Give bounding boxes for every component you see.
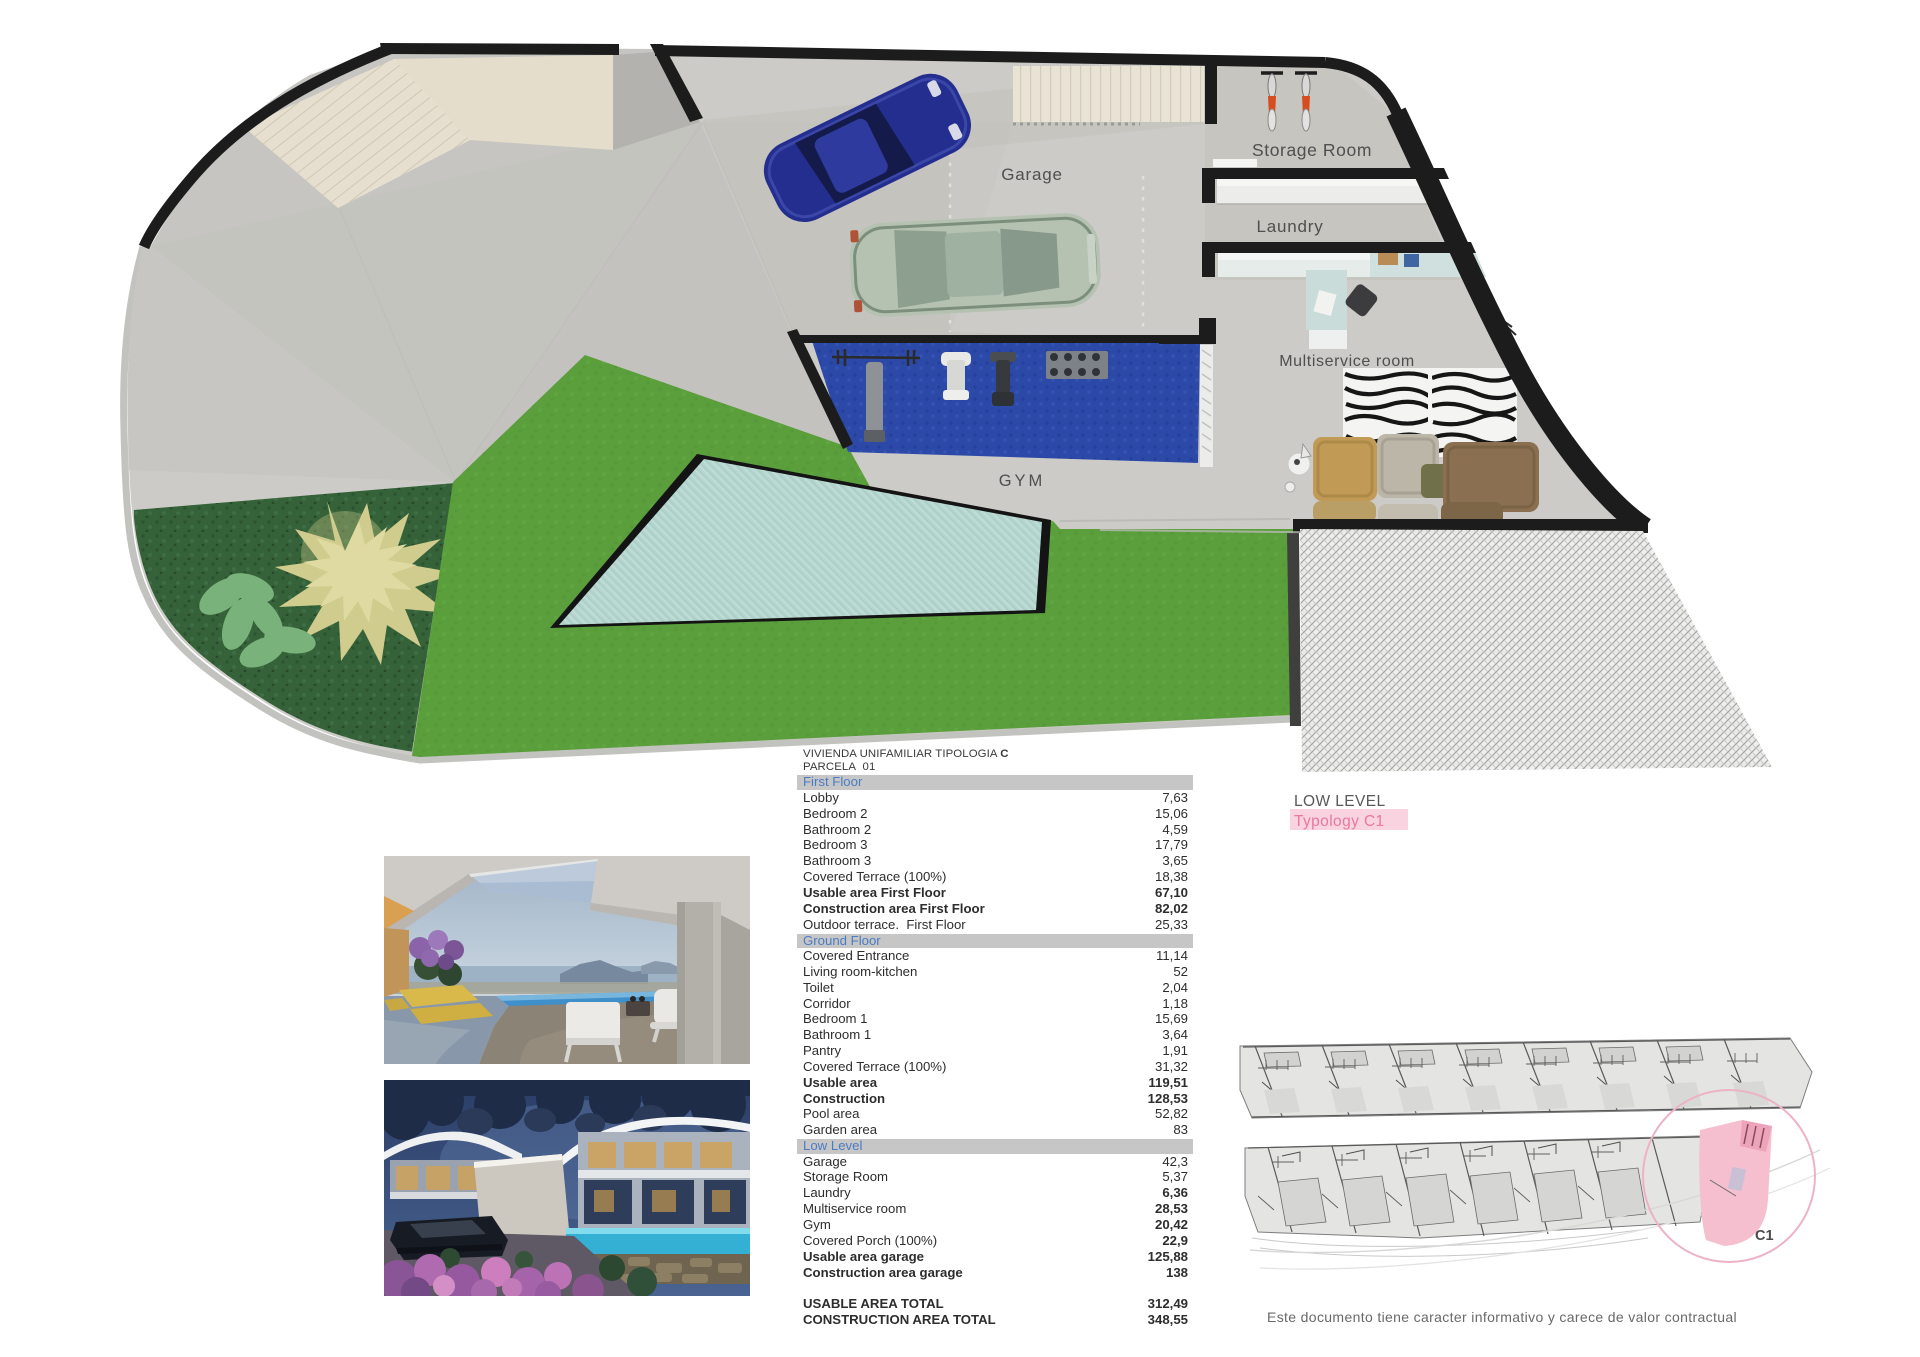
svg-text:C1: C1 xyxy=(1755,1228,1774,1244)
svg-text:Garage: Garage xyxy=(1001,165,1063,184)
svg-text:Multiservice room: Multiservice room xyxy=(1279,353,1415,370)
svg-text:Este documento tiene caracter: Este documento tiene caracter informativ… xyxy=(1267,1309,1737,1325)
svg-text:LOW LEVEL: LOW LEVEL xyxy=(1294,793,1385,810)
svg-text:Typology C1: Typology C1 xyxy=(1294,813,1385,830)
svg-text:GYM: GYM xyxy=(999,472,1046,490)
svg-text:Storage Room: Storage Room xyxy=(1252,140,1372,160)
svg-text:Laundry: Laundry xyxy=(1256,217,1323,236)
